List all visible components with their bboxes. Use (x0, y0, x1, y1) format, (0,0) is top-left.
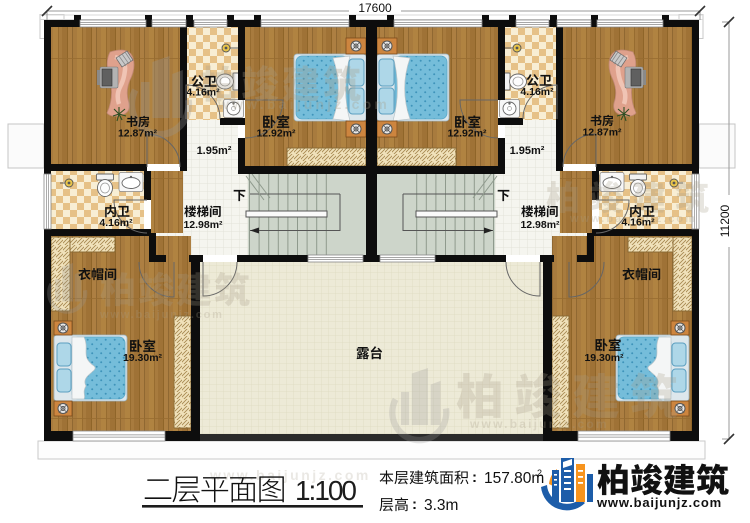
svg-text:1.95m²: 1.95m² (510, 145, 545, 157)
svg-text:www.baijunjz.com: www.baijunjz.com (596, 495, 722, 510)
svg-text:1.95m²: 1.95m² (197, 145, 232, 157)
svg-text::: : (412, 496, 417, 513)
svg-text:3.3m: 3.3m (424, 497, 458, 514)
svg-text:www.baijunjz.com: www.baijunjz.com (469, 417, 609, 431)
svg-text:12.98m²: 12.98m² (520, 219, 560, 231)
svg-text:12.92m²: 12.92m² (256, 128, 296, 140)
svg-text:11200: 11200 (718, 204, 732, 237)
svg-text:12.87m²: 12.87m² (118, 128, 158, 140)
svg-text::: : (472, 469, 477, 486)
svg-text:2: 2 (537, 468, 542, 478)
svg-text:www.baijunjz.com: www.baijunjz.com (217, 96, 390, 112)
svg-text:4.16m²: 4.16m² (99, 217, 133, 229)
svg-text:4.16m²: 4.16m² (520, 86, 554, 98)
svg-text:12.87m²: 12.87m² (582, 127, 622, 139)
svg-text:12.92m²: 12.92m² (447, 128, 487, 140)
svg-text:17600: 17600 (358, 1, 392, 15)
svg-text:19.30m²: 19.30m² (123, 352, 163, 364)
svg-text:12.98m²: 12.98m² (183, 219, 223, 231)
svg-text:1:100: 1:100 (295, 475, 357, 506)
svg-text:4.16m²: 4.16m² (621, 217, 655, 229)
svg-text:www.baijunjz.com: www.baijunjz.com (99, 309, 224, 321)
svg-text:19.30m²: 19.30m² (584, 352, 624, 364)
svg-text:157.80m: 157.80m (484, 470, 544, 487)
svg-text:4.16m²: 4.16m² (186, 87, 220, 99)
